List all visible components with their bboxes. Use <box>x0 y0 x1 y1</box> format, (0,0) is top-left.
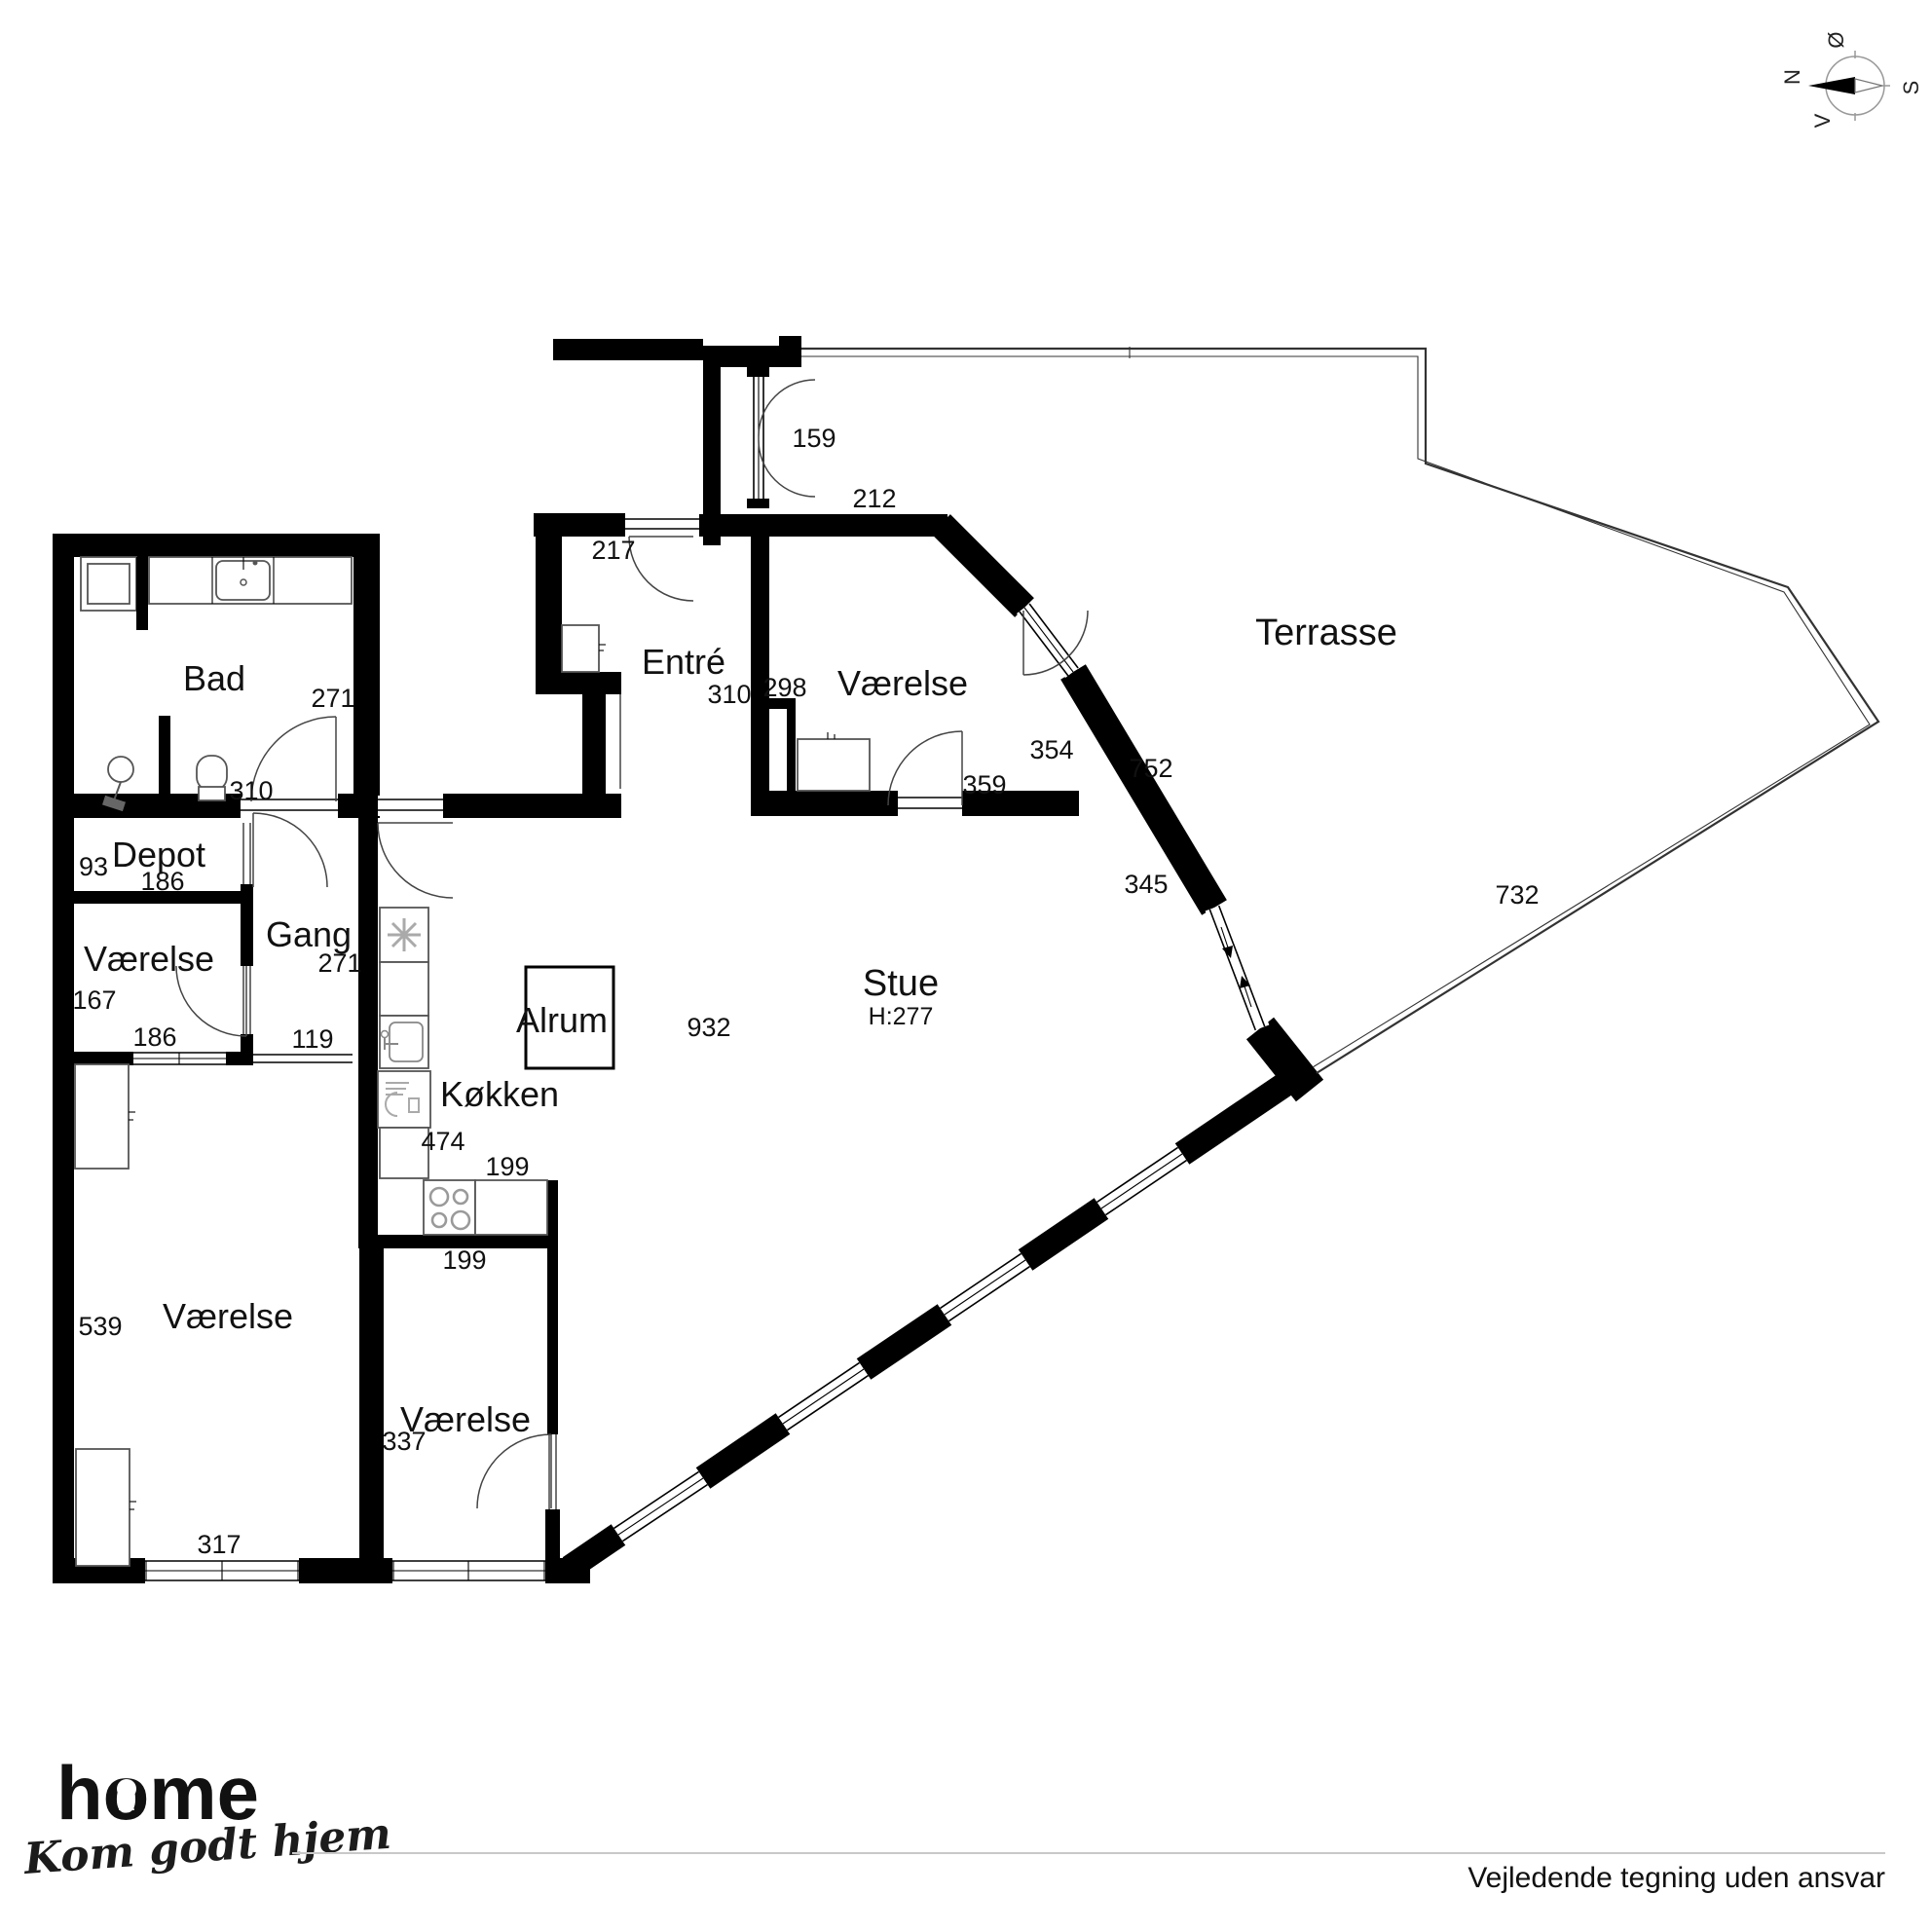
dim-depot-93: 93 <box>79 852 108 881</box>
footer: home Kom godt hjem Vejledende tegning ud… <box>20 1750 1885 1894</box>
compass-label-south: S <box>1899 81 1923 95</box>
dim-354: 354 <box>1029 735 1073 764</box>
disclaimer-text: Vejledende tegning uden ansvar <box>1468 1862 1885 1894</box>
dim-212: 212 <box>852 484 896 513</box>
dim-entre-310: 310 <box>707 680 751 709</box>
room-label-bad: Bad <box>183 658 245 698</box>
dim-vaerelse-n-298: 298 <box>762 673 806 702</box>
room-label-alrum: Alrum <box>516 1000 608 1040</box>
stove-icon <box>424 1180 475 1235</box>
floor-plan-canvas: Bad Depot Værelse Gang Køkken Entré Være… <box>0 0 1932 1932</box>
ceiling-height-label: H:277 <box>869 1003 934 1030</box>
dim-koekken-199b: 199 <box>442 1245 486 1275</box>
room-label-koekken: Køkken <box>440 1074 559 1114</box>
dim-bad-310: 310 <box>229 776 273 805</box>
dim-bad-271: 271 <box>311 684 354 713</box>
dim-732: 732 <box>1495 880 1539 910</box>
dim-gang-119: 119 <box>291 1024 333 1054</box>
entre-closet <box>562 625 606 672</box>
room-label-terrasse: Terrasse <box>1255 613 1397 653</box>
compass-label-north: N <box>1780 69 1804 85</box>
floor-plan-page: Bad Depot Værelse Gang Køkken Entré Være… <box>0 0 1932 1932</box>
dim-345: 345 <box>1124 870 1168 899</box>
kitchen-counter <box>475 1180 547 1235</box>
fridge-icon <box>380 908 428 962</box>
dim-159: 159 <box>792 424 836 453</box>
dim-752: 752 <box>1129 754 1172 783</box>
dim-depot-186: 186 <box>140 867 184 896</box>
dim-entre-217: 217 <box>591 536 635 565</box>
dim-vaerelse-sw-539: 539 <box>78 1312 122 1341</box>
compass-needle-south <box>1855 79 1882 93</box>
dim-vaerelse-s-337: 337 <box>382 1427 426 1456</box>
room-label-stue: Stue <box>863 963 939 1004</box>
wardrobe <box>75 1064 135 1169</box>
dim-koekken-474: 474 <box>421 1127 464 1156</box>
compass-icon: Ø N S V <box>1780 31 1923 128</box>
dim-vaerelse-sw-317: 317 <box>197 1530 241 1559</box>
shower-icon <box>81 557 136 611</box>
vanity-sink-icon <box>149 557 352 604</box>
dim-359: 359 <box>962 770 1006 799</box>
compass-label-west: V <box>1810 113 1835 128</box>
kitchen-cabinet <box>380 962 428 1016</box>
terrace-outline <box>801 347 1878 1073</box>
room-label-entre: Entré <box>642 642 725 682</box>
dishwasher-icon <box>378 1071 430 1128</box>
dim-gang-271: 271 <box>317 948 361 978</box>
double-door-159 <box>750 377 769 499</box>
kitchen-sink-icon <box>380 1016 428 1068</box>
dim-932: 932 <box>687 1013 730 1042</box>
toilet-icon <box>197 756 227 800</box>
sliding-door-345 <box>1209 906 1264 1030</box>
room-label-vaerelse-n: Værelse <box>837 663 968 703</box>
compass-label-east: Ø <box>1824 31 1848 48</box>
room-label-vaerelse-sw: Værelse <box>163 1296 293 1336</box>
dim-koekken-199a: 199 <box>485 1152 529 1181</box>
wardrobe <box>76 1449 136 1566</box>
vaerelse-n-closet <box>798 732 870 791</box>
dim-vaerelse-nw-186: 186 <box>132 1022 176 1052</box>
room-label-vaerelse-nw: Værelse <box>84 939 214 979</box>
compass-needle-north <box>1808 77 1855 94</box>
window-354 <box>1020 604 1078 676</box>
dim-vaerelse-nw-167: 167 <box>72 985 116 1015</box>
